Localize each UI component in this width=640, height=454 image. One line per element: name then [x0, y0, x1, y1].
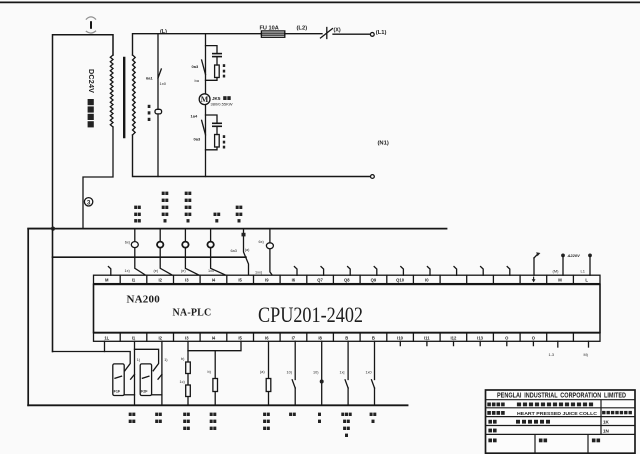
- svg-text:M: M: [105, 277, 109, 282]
- svg-text:(a): (a): [260, 370, 265, 374]
- svg-text:(L): (L): [160, 29, 167, 35]
- svg-text:6a3: 6a3: [231, 249, 237, 253]
- svg-text:10): 10): [287, 371, 293, 375]
- svg-text:(L1): (L1): [376, 30, 387, 36]
- svg-text:(L2): (L2): [297, 25, 308, 31]
- svg-text:1-3: 1-3: [549, 353, 555, 357]
- svg-text:1x0: 1x0: [366, 371, 372, 375]
- svg-text:Q8: Q8: [344, 277, 350, 282]
- svg-text:A220V: A220V: [567, 253, 581, 258]
- svg-text:I10: I10: [397, 335, 403, 340]
- svg-text:(a): (a): [245, 248, 250, 252]
- svg-text:F1F: F1F: [114, 390, 121, 394]
- svg-text:M: M: [201, 95, 209, 104]
- svg-text:6x): 6x): [125, 240, 131, 244]
- svg-text:0a3: 0a3: [192, 64, 199, 69]
- svg-text:DC24V: DC24V: [87, 69, 96, 93]
- svg-text:HEART PRESSED JUICE COLLC: HEART PRESSED JUICE COLLC: [517, 411, 598, 417]
- svg-text:B: B: [372, 335, 375, 340]
- svg-text:M: M: [558, 277, 562, 282]
- svg-text:I12: I12: [450, 335, 456, 340]
- svg-text:PENGLAI INDUSTRIAL CORPORATION: PENGLAI INDUSTRIAL CORPORATION LIMITED: [497, 393, 626, 400]
- svg-text:ba: ba: [195, 78, 200, 83]
- svg-text:(M): (M): [553, 268, 560, 273]
- svg-text:1N: 1N: [603, 429, 610, 434]
- svg-text:Q9: Q9: [371, 277, 377, 282]
- svg-text:6a1: 6a1: [146, 76, 153, 81]
- svg-text:1x|: 1x|: [340, 371, 345, 375]
- svg-text:3: 3: [87, 199, 91, 206]
- svg-text:B: B: [345, 335, 348, 340]
- svg-text:I11: I11: [424, 335, 430, 340]
- svg-text:NA200: NA200: [127, 293, 161, 305]
- svg-text:M): M): [584, 353, 589, 357]
- svg-text:0a3: 0a3: [194, 136, 201, 141]
- svg-text:b): b): [208, 370, 212, 374]
- svg-text:F2F: F2F: [141, 390, 148, 394]
- svg-text:1x): 1x): [125, 269, 131, 273]
- svg-text:NA-PLC: NA-PLC: [173, 307, 212, 318]
- svg-text:1): 1): [164, 358, 168, 362]
- svg-text:L1: L1: [581, 268, 586, 273]
- svg-text:1): 1): [137, 358, 141, 362]
- svg-text:1K: 1K: [603, 420, 610, 425]
- svg-text:b): b): [181, 357, 185, 361]
- svg-text:(e): (e): [181, 269, 186, 273]
- svg-text:I13: I13: [477, 335, 483, 340]
- svg-text:1xx): 1xx): [255, 270, 263, 274]
- svg-text:(N1): (N1): [378, 141, 389, 147]
- svg-text:6x): 6x): [259, 240, 265, 244]
- svg-text:(X): (X): [334, 27, 341, 33]
- svg-text:1L: 1L: [104, 335, 109, 340]
- svg-text:10): 10): [313, 371, 319, 375]
- svg-text:Q7: Q7: [317, 277, 323, 282]
- svg-text:L: L: [585, 277, 588, 282]
- svg-text:JK5: JK5: [212, 96, 221, 101]
- svg-text:1c): 1c): [180, 380, 186, 384]
- svg-text:Q10: Q10: [396, 277, 405, 282]
- svg-text:1x0: 1x0: [160, 81, 167, 86]
- svg-text:380/0.55KW: 380/0.55KW: [211, 102, 233, 107]
- svg-text:(e): (e): [154, 269, 159, 273]
- svg-text:FU 10A: FU 10A: [260, 26, 279, 32]
- svg-text:1a4: 1a4: [191, 113, 198, 118]
- svg-text:1x0: 1x0: [208, 269, 214, 273]
- svg-text:CPU201-2402: CPU201-2402: [258, 302, 363, 327]
